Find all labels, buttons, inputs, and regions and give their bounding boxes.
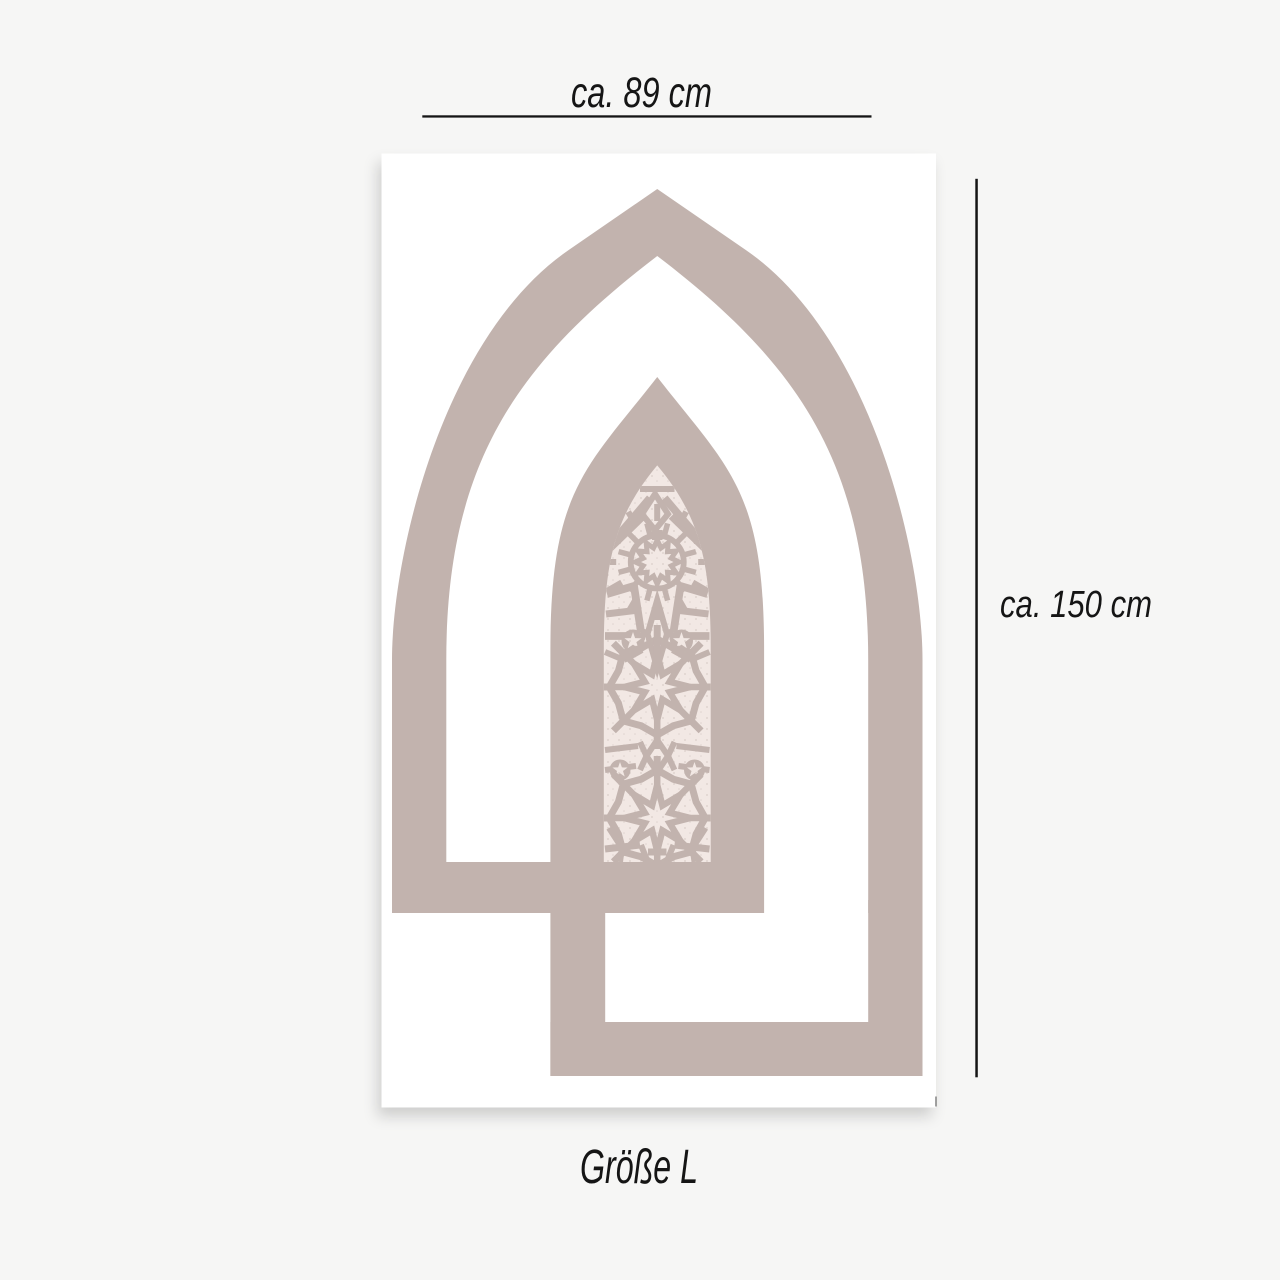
svg-text:ca. 89 cm: ca. 89 cm (571, 69, 712, 117)
svg-text:ca. 150 cm: ca. 150 cm (1000, 584, 1152, 626)
svg-text:Größe L: Größe L (580, 1141, 698, 1194)
